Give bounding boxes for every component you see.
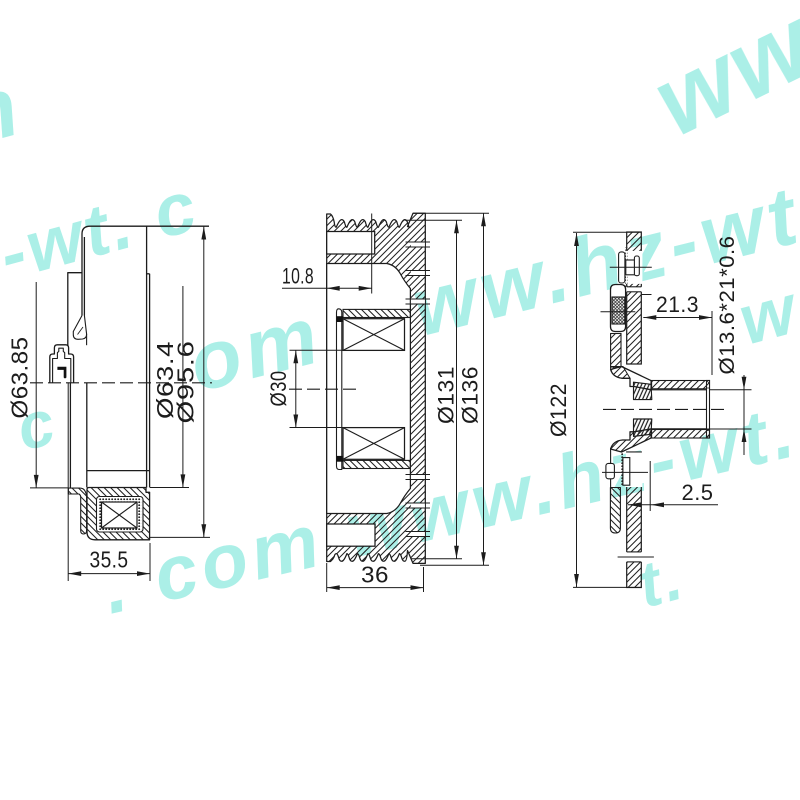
svg-text:2.5: 2.5 — [682, 480, 714, 505]
svg-text:Ø63.85: Ø63.85 — [7, 337, 33, 419]
svg-text:Ø30: Ø30 — [266, 371, 291, 407]
svg-text:10.8: 10.8 — [282, 264, 314, 289]
svg-text:Ø95.6: Ø95.6 — [173, 341, 199, 424]
svg-text:Ø136: Ø136 — [458, 366, 483, 424]
svg-text:Ø13.6*21*0.6: Ø13.6*21*0.6 — [716, 236, 739, 375]
svg-text:36: 36 — [361, 562, 389, 588]
svg-text:21.3: 21.3 — [656, 292, 699, 317]
svg-text:m: m — [0, 58, 31, 170]
svg-text:35.5: 35.5 — [90, 547, 129, 573]
svg-text:Ø122: Ø122 — [546, 383, 571, 437]
svg-text:w: w — [731, 269, 800, 360]
svg-text:ww: ww — [637, 0, 800, 158]
svg-text:z-wt. c: z-wt. c — [0, 166, 207, 306]
svg-text:Ø131: Ø131 — [434, 366, 459, 424]
